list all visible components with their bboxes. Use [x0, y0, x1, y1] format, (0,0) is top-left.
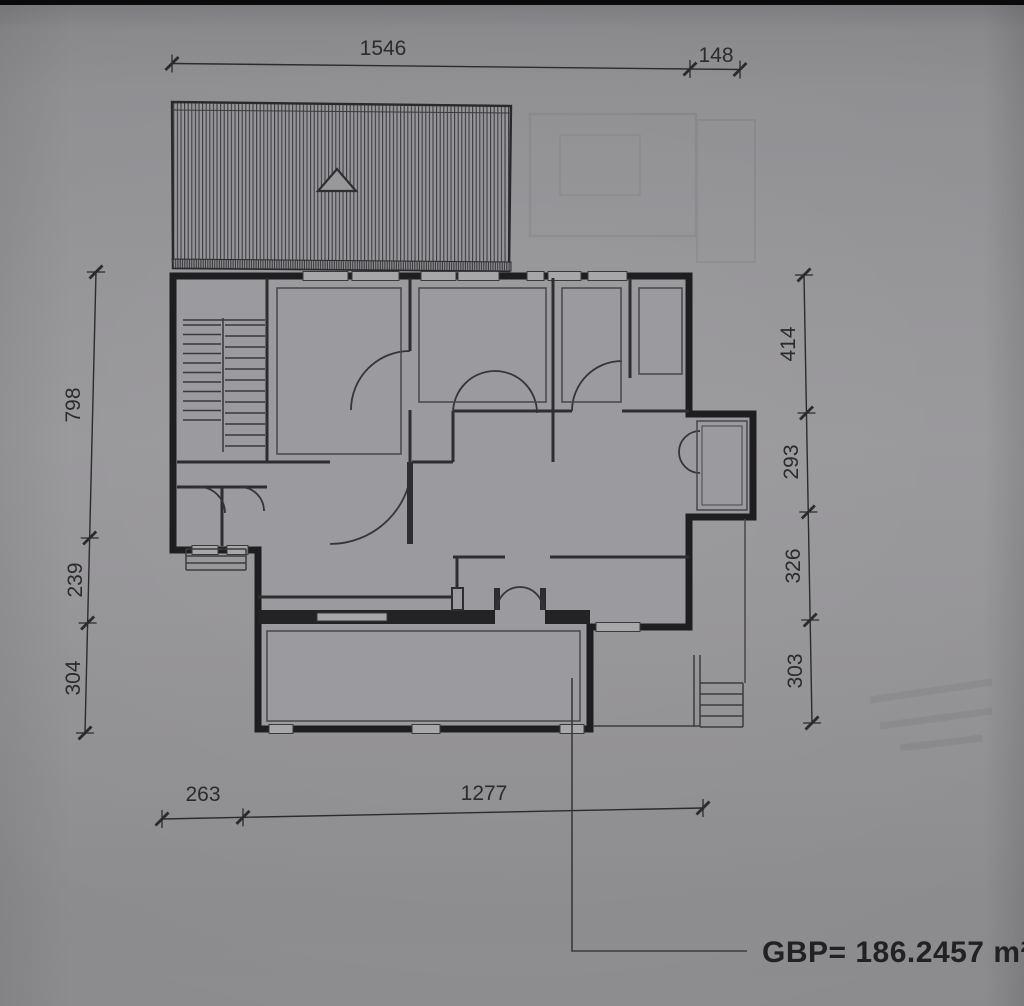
dim-label-top-span: 1546 — [360, 37, 407, 60]
exterior-steps-right — [593, 655, 743, 727]
building-outline — [173, 276, 753, 729]
dimension-line-bottom: 263 1277 — [156, 782, 710, 828]
dim-label-bottom-1: 1277 — [461, 782, 508, 805]
gross-area-label: GBP= 186.2457 m² — [762, 936, 1024, 969]
dim-label-right-0: 414 — [777, 326, 800, 361]
dim-label-right-3: 303 — [784, 653, 807, 688]
dim-label-bottom-0: 263 — [185, 783, 220, 806]
dimension-line-right: 414 293 326 303 — [777, 269, 821, 730]
dim-label-left-0: 798 — [62, 387, 85, 422]
dimension-line-left: 798 239 304 — [62, 266, 105, 740]
floor-plan-svg: 1546 148 798 239 304 414 293 326 303 — [0, 0, 1024, 1006]
area-leader: GBP= 186.2457 m² — [572, 678, 1024, 969]
dim-label-top-bay: 148 — [698, 44, 733, 67]
dim-label-left-1: 239 — [64, 562, 87, 597]
dim-label-left-2: 304 — [62, 660, 85, 695]
dim-label-right-1: 293 — [780, 444, 803, 479]
scanned-floor-plan-photo: 1546 148 798 239 304 414 293 326 303 — [0, 0, 1024, 1006]
dimension-line-top: 1546 148 — [166, 37, 747, 79]
dim-label-right-2: 326 — [782, 548, 805, 583]
roof-hatched-area — [172, 102, 511, 271]
